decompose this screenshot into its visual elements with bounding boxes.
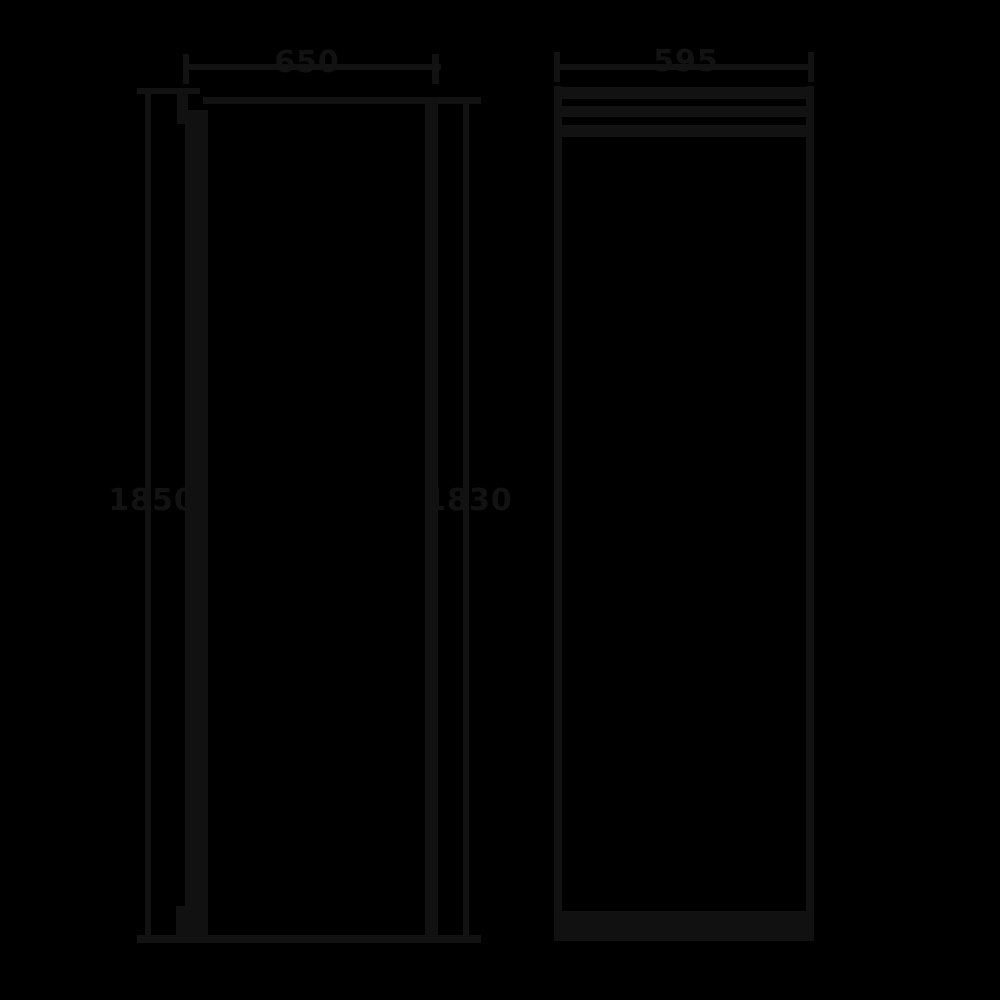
front-bottom-plinth-band [554,911,814,941]
depth-dimension-label: 650 [274,48,340,78]
height-dimension-label-right: 1830 [425,486,513,516]
dimension-drawing: 650 1850 1830 595 [0,0,1000,1000]
front-top-dimension-tick-left [554,52,560,82]
side-cabinet-top-edge [203,97,481,104]
side-top-dimension-tick-right [432,54,439,84]
front-hinge-cover-line [554,106,814,117]
side-top-dimension-tick-left [183,54,189,84]
side-cabinet-back-edge [425,97,438,938]
front-door-top-line [554,125,814,137]
front-cabinet-left-edge [554,86,562,941]
width-dimension-label: 595 [653,47,719,77]
side-ground-line [137,935,481,943]
side-door-front-band [185,116,208,912]
side-right-dimension-line [463,97,469,942]
height-dimension-label-left: 1850 [108,486,196,516]
side-hinge-foot [177,110,208,124]
side-bottom-step [176,906,208,938]
front-top-dimension-tick-right [808,52,814,82]
front-cabinet-right-edge [806,86,814,941]
front-cabinet-top-edge [554,87,814,99]
